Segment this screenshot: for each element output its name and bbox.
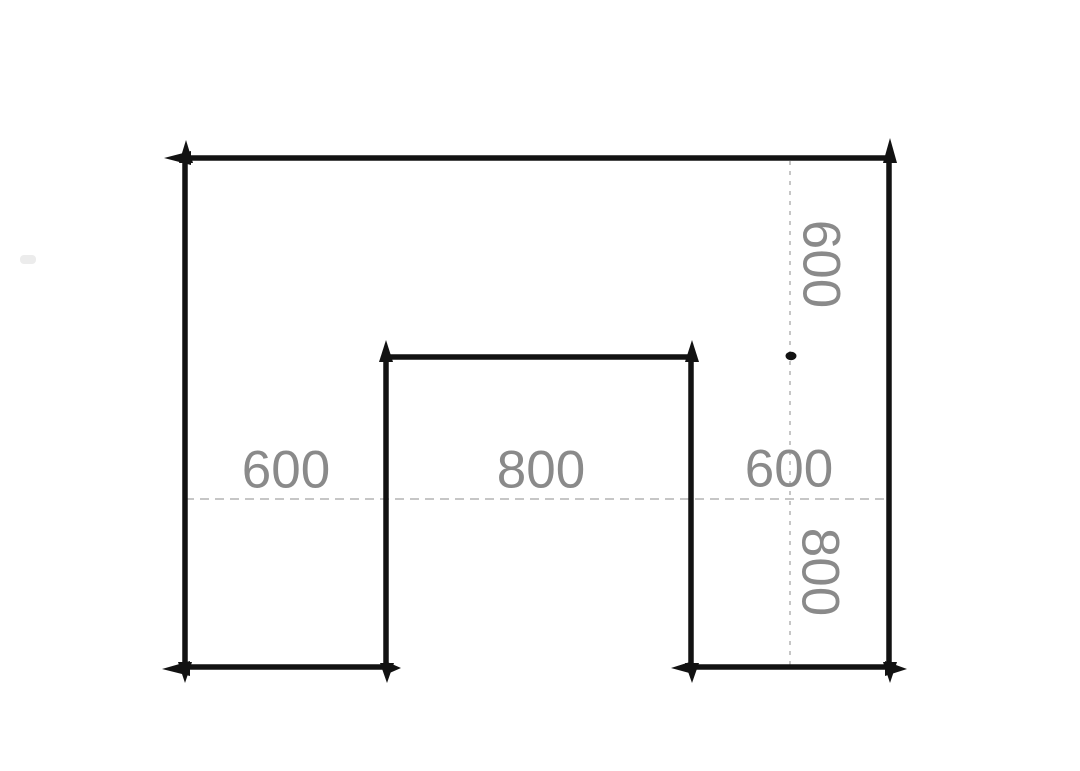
dimension-label-width-right: 600	[745, 443, 833, 496]
arrow-tick	[883, 138, 897, 163]
shape-outline	[185, 158, 889, 667]
arrow-tick	[685, 340, 699, 362]
stray-smudge	[20, 255, 36, 264]
dimension-label-height-lower-right: 800	[794, 528, 847, 616]
arrow-tick	[379, 340, 393, 362]
dimension-label-width-center: 800	[497, 444, 585, 497]
arrow-tick	[685, 663, 699, 683]
reference-dot	[786, 352, 797, 360]
dimension-label-height-upper-right: 600	[795, 220, 848, 308]
arrow-tick	[380, 663, 394, 683]
dimension-drawing: 600 800 600 600 800	[0, 0, 1080, 771]
drawing-canvas	[0, 0, 1080, 771]
dimension-label-width-left: 600	[242, 444, 330, 497]
